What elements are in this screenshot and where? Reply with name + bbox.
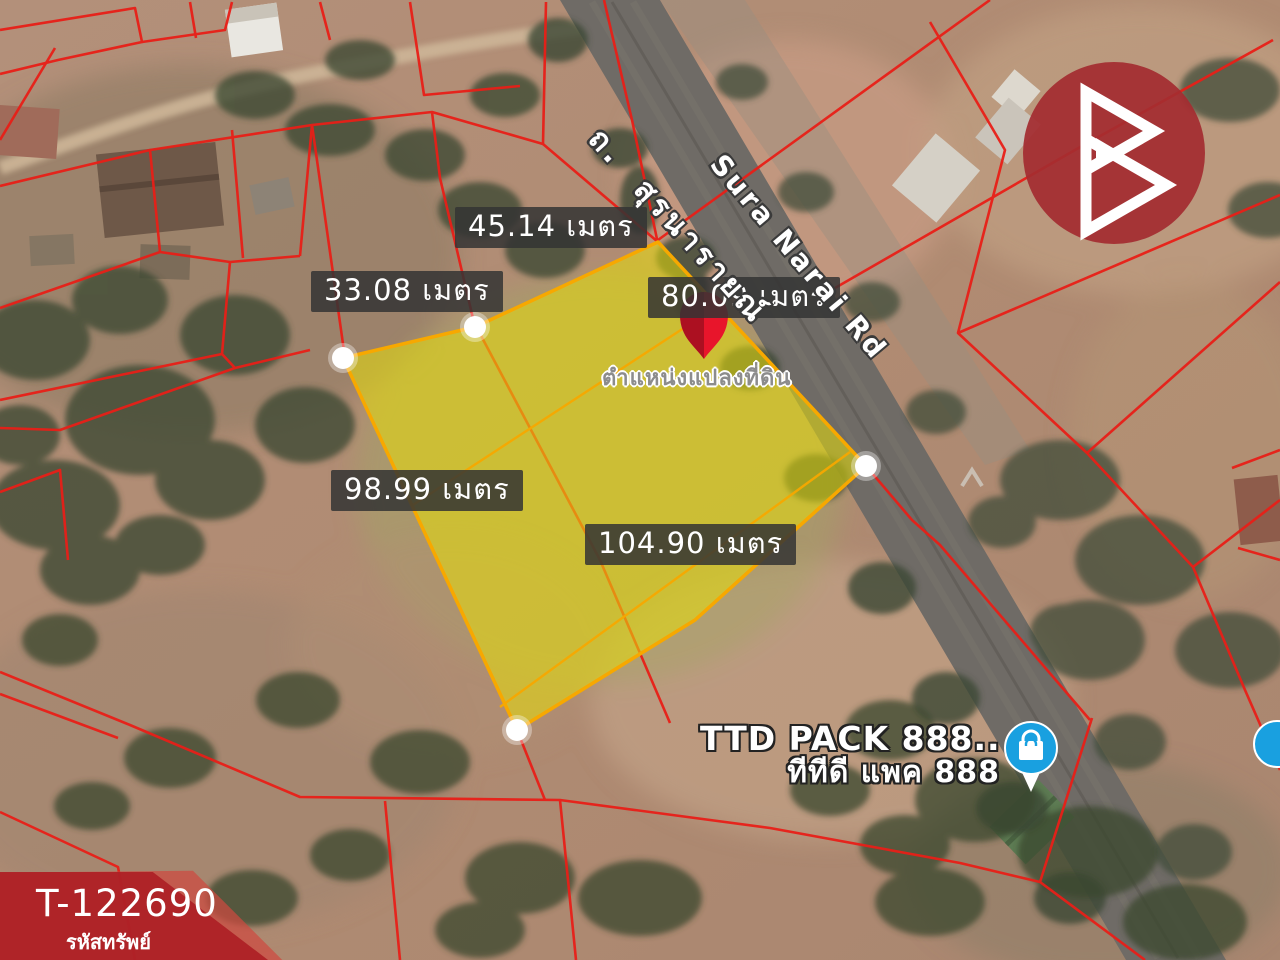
measurement-label-south: 104.90 เมตร: [585, 524, 796, 565]
property-code-caption: รหัสทรัพย์: [66, 926, 151, 958]
measurement-label-southwest: 98.99 เมตร: [331, 470, 523, 511]
poi-label[interactable]: TTD PACK 888.. ทีทีดี แพค 888: [700, 722, 1000, 788]
plot-location-label: ตำแหน่งแปลงที่ดิน: [602, 360, 791, 395]
brand-logo-icon: [1023, 62, 1205, 244]
poi-name-english: TTD PACK 888..: [700, 722, 1000, 755]
measurement-label-top: 45.14 เมตร: [455, 207, 647, 248]
poi-name-thai: ทีทีดี แพค 888: [700, 758, 1000, 788]
property-code: T-122690: [36, 882, 218, 925]
measurement-label-northwest: 33.08 เมตร: [311, 271, 503, 312]
satellite-map-view[interactable]: 45.14 เมตร 33.08 เมตร 80.09 เมตร 98.99 เ…: [0, 0, 1280, 960]
